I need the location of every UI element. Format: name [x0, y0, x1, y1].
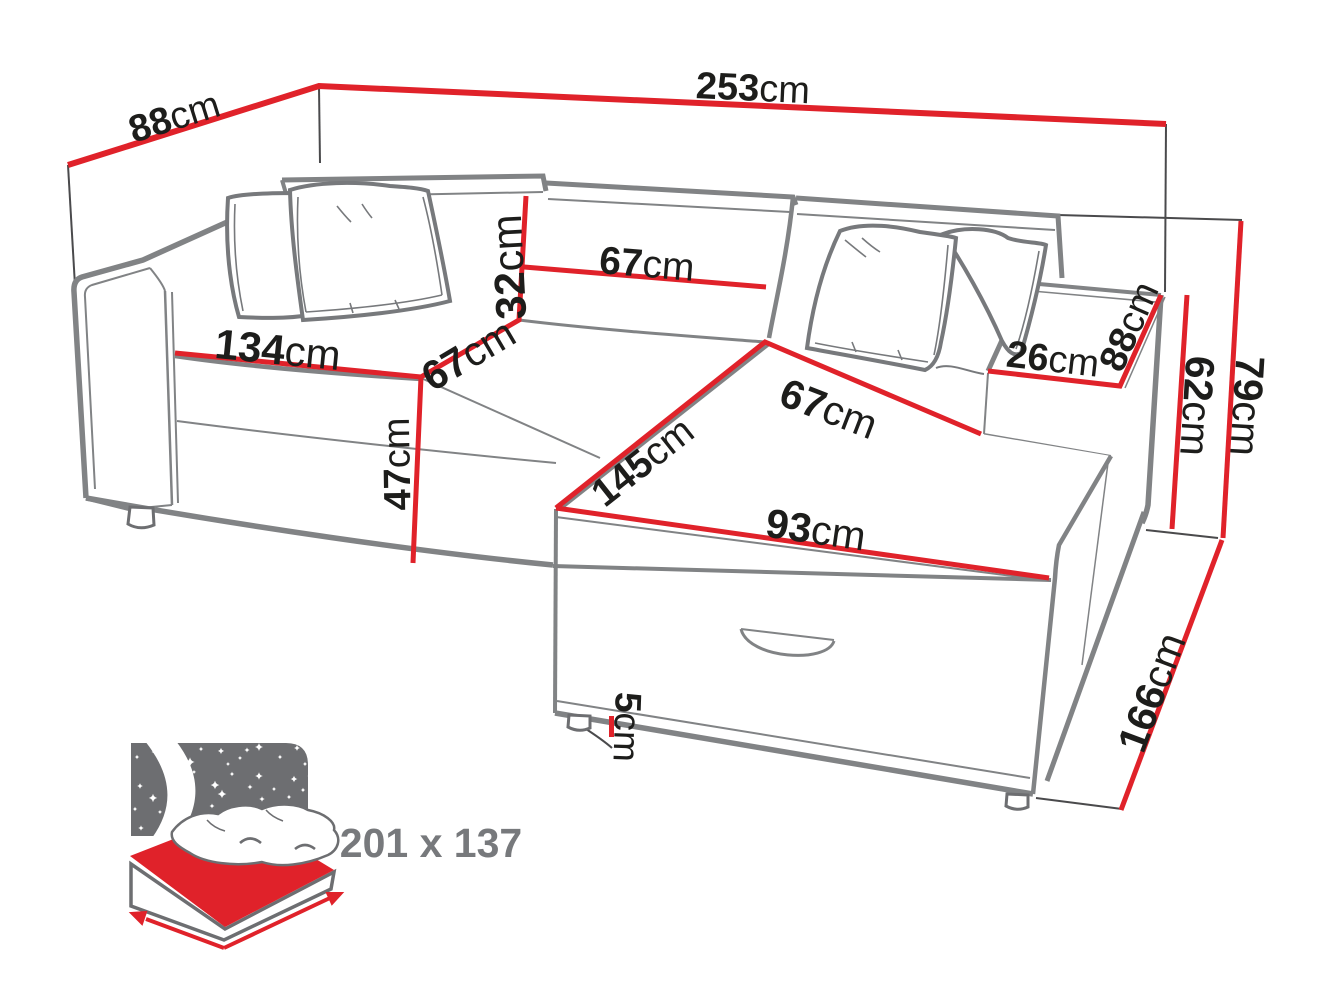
svg-text:62cm: 62cm [1171, 355, 1223, 458]
svg-text:67cm: 67cm [598, 239, 697, 290]
svg-text:32cm: 32cm [483, 213, 536, 321]
svg-text:88cm: 88cm [124, 84, 225, 152]
svg-text:253cm: 253cm [695, 65, 811, 112]
svg-text:5cm: 5cm [605, 691, 648, 762]
svg-text:201 x 137: 201 x 137 [340, 820, 522, 866]
svg-text:67cm: 67cm [414, 309, 524, 400]
svg-text:47cm: 47cm [376, 417, 420, 511]
svg-text:166cm: 166cm [1109, 627, 1195, 758]
svg-text:134cm: 134cm [213, 320, 343, 379]
svg-text:79cm: 79cm [1221, 355, 1273, 458]
